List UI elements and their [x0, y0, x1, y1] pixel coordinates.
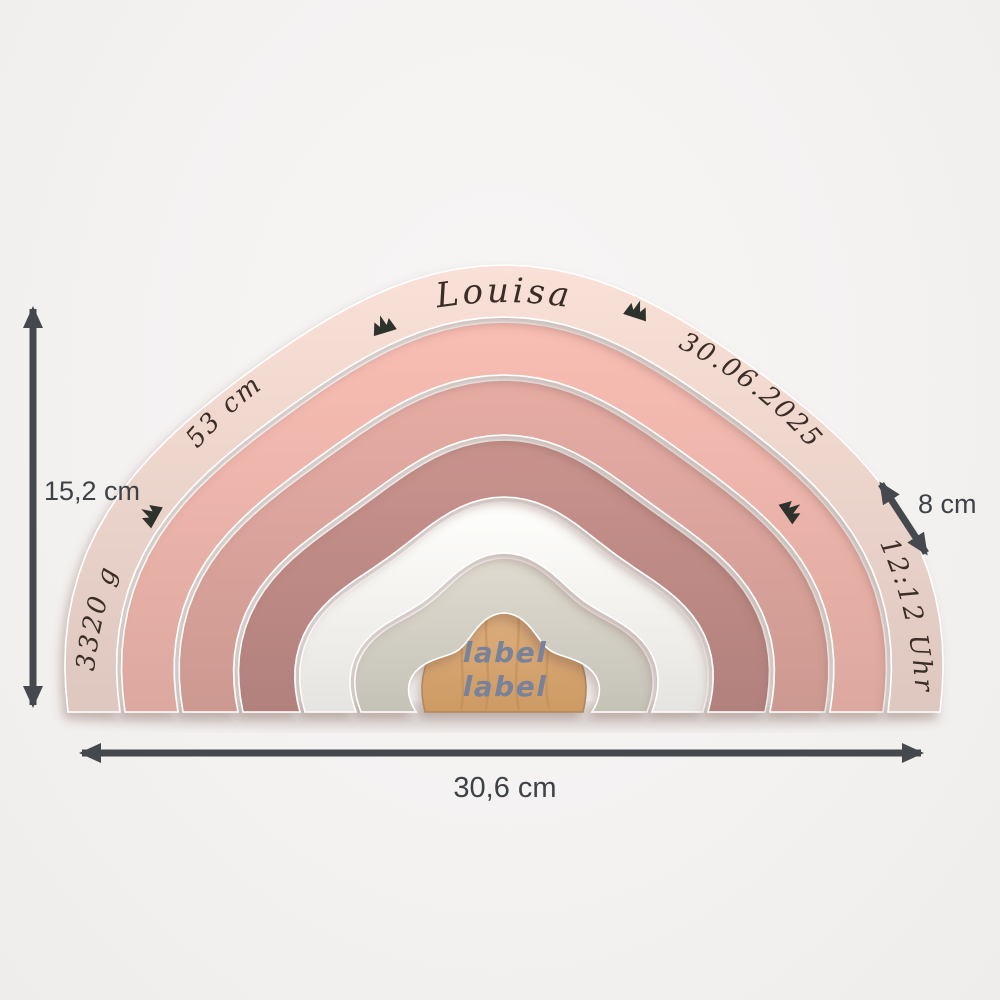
brand-logo-line1: label: [463, 636, 548, 669]
product-dimension-image: label label 3320 g 53 cm Louisa 30.06.20…: [0, 0, 1000, 1000]
scene: label label 3320 g 53 cm Louisa 30.06.20…: [0, 0, 1000, 1000]
dimension-depth-label: 8 cm: [918, 489, 977, 519]
engraving-name: Louisa: [432, 271, 574, 316]
brand-logo-line2: label: [463, 670, 548, 703]
dimension-width-label: 30,6 cm: [453, 772, 556, 804]
dimension-height-label: 15,2 cm: [44, 476, 140, 506]
